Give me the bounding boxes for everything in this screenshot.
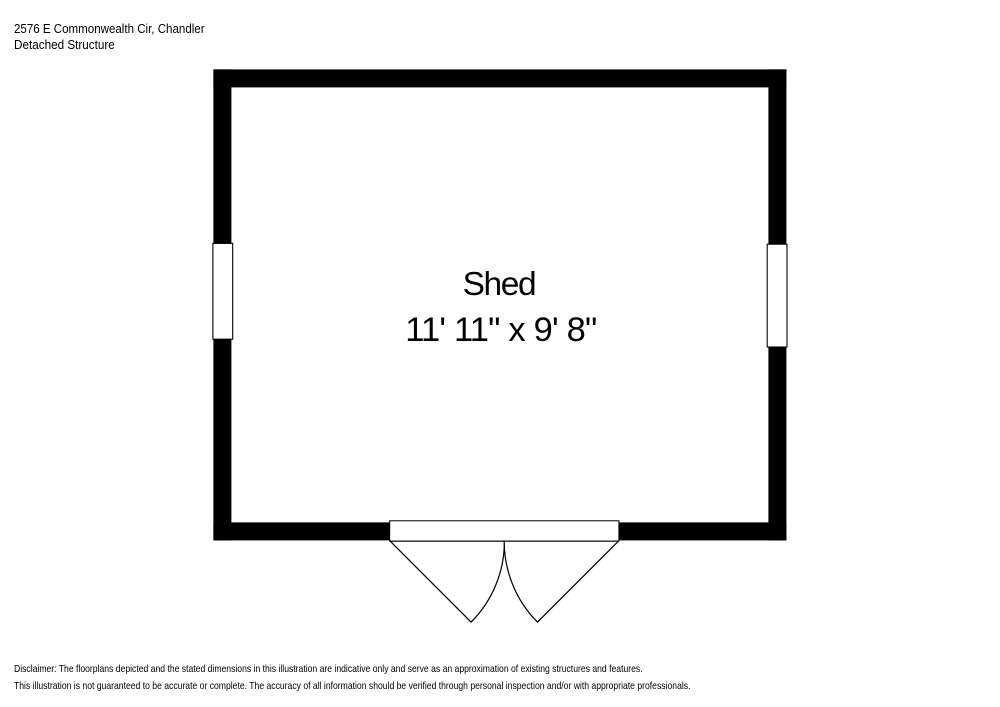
svg-text:11' 11" x 9' 8": 11' 11" x 9' 8": [405, 311, 597, 349]
svg-text:Shed: Shed: [463, 266, 537, 303]
